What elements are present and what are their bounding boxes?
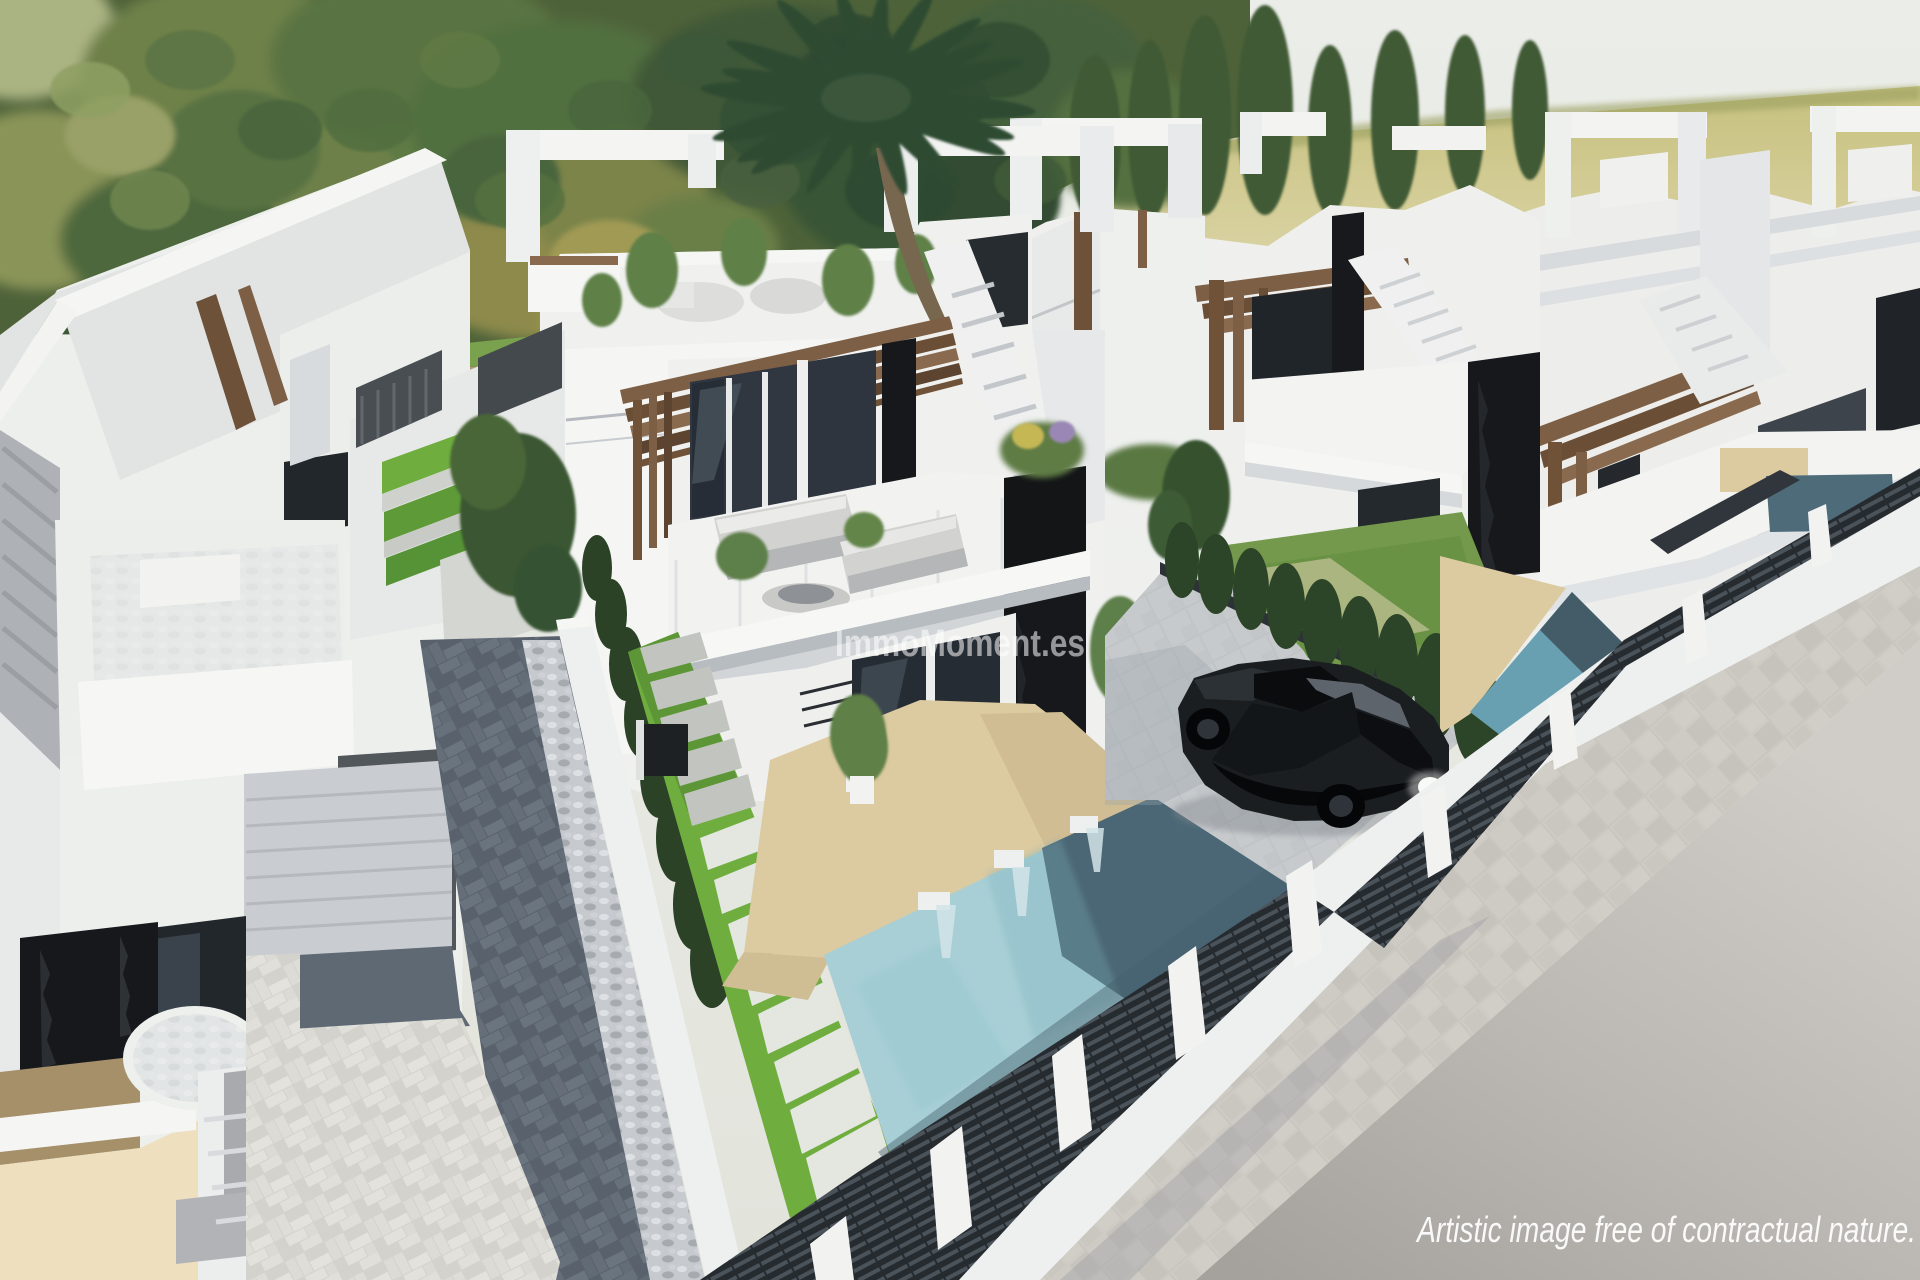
svg-text:Artistic image free of contrac: Artistic image free of contractual natur… — [1415, 1209, 1916, 1250]
svg-text:ImmoMoment.es: ImmoMoment.es — [835, 623, 1085, 665]
